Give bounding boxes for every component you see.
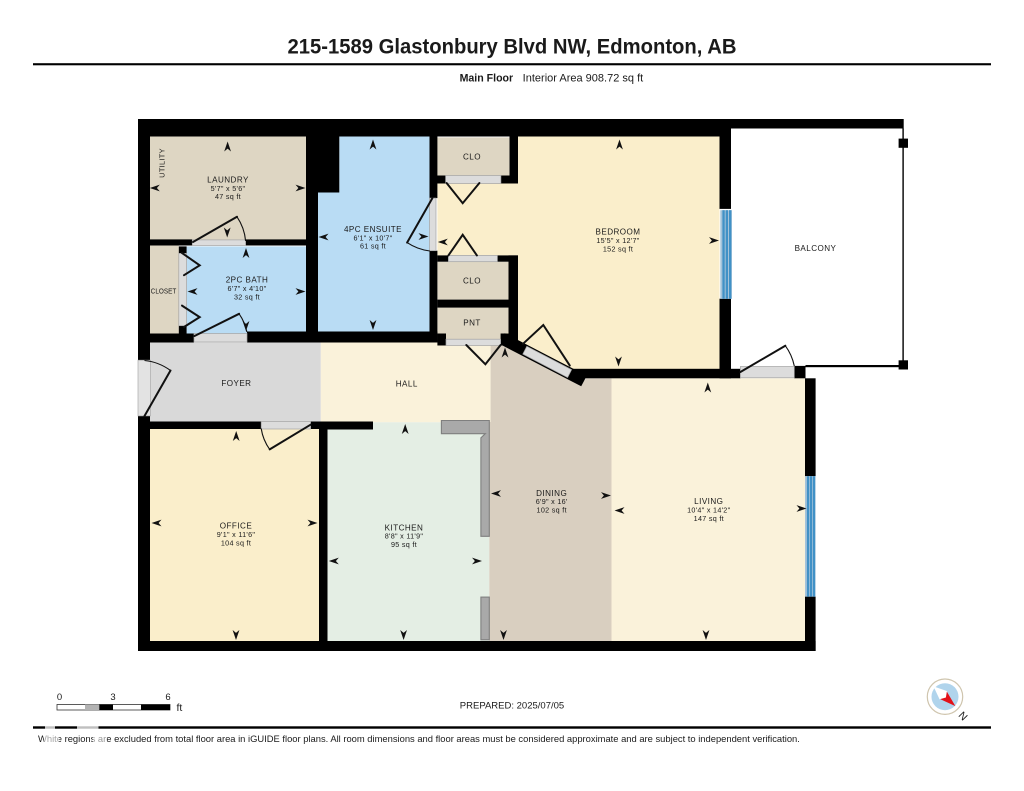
svg-text:CLOSET: CLOSET <box>151 287 177 296</box>
svg-text:147 sq ft: 147 sq ft <box>694 514 724 523</box>
svg-text:102 sq ft: 102 sq ft <box>537 505 567 514</box>
svg-text:Interior Area 908.72 sq ft: Interior Area 908.72 sq ft <box>523 72 644 84</box>
svg-text:152 sq ft: 152 sq ft <box>603 244 633 253</box>
svg-text:0: 0 <box>57 692 62 703</box>
svg-text:FOYER: FOYER <box>221 379 251 388</box>
svg-text:CLO: CLO <box>463 152 481 161</box>
svg-text:3: 3 <box>110 692 115 703</box>
svg-text:HALL: HALL <box>396 380 418 389</box>
svg-text:UTILITY: UTILITY <box>158 148 167 178</box>
svg-text:PREPARED: 2025/07/05: PREPARED: 2025/07/05 <box>460 701 564 712</box>
svg-text:32 sq ft: 32 sq ft <box>234 292 260 301</box>
svg-text:215-1589 Glastonbury Blvd NW,: 215-1589 Glastonbury Blvd NW, Edmonton, … <box>288 36 737 59</box>
svg-text:N: N <box>956 710 970 724</box>
svg-text:BALCONY: BALCONY <box>795 244 837 253</box>
svg-text:White regions are excluded fro: White regions are excluded from total fl… <box>38 733 800 744</box>
svg-text:6: 6 <box>165 692 170 703</box>
svg-text:LAUNDRY: LAUNDRY <box>207 175 249 184</box>
svg-text:95 sq ft: 95 sq ft <box>391 540 417 549</box>
svg-text:CLO: CLO <box>463 277 481 286</box>
svg-text:PNT: PNT <box>463 319 481 328</box>
svg-text:61 sq ft: 61 sq ft <box>360 242 386 251</box>
svg-text:104 sq ft: 104 sq ft <box>221 538 251 547</box>
svg-text:Main Floor: Main Floor <box>460 72 514 84</box>
svg-text:47 sq ft: 47 sq ft <box>215 192 241 201</box>
svg-text:ft: ft <box>177 702 183 714</box>
